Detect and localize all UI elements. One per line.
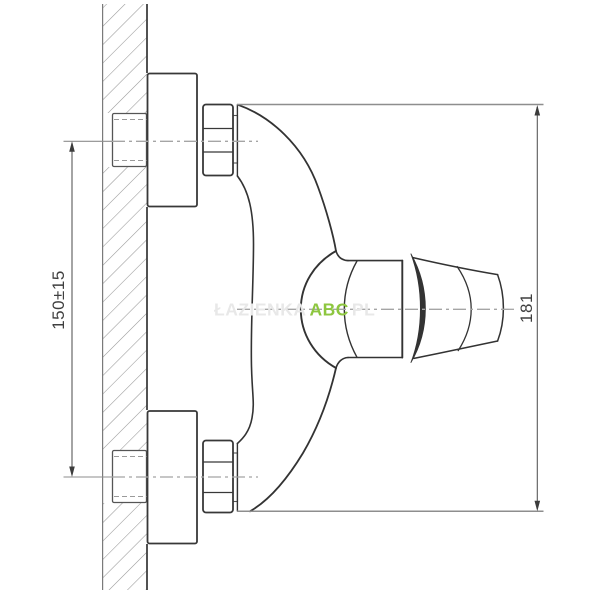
dome-bottom-fillet [336, 358, 348, 369]
handle-grip-bottom-edge [414, 341, 498, 358]
arrowhead-181-up [535, 105, 541, 116]
handle-grip-end-cap [498, 275, 504, 341]
handle-ring-crescent [411, 254, 426, 363]
dome-top-fillet [336, 251, 348, 261]
watermark: ŁAZIENKA ABC PL [214, 300, 375, 321]
wall-hatch-upper [102, 4, 147, 113]
handle-grip-contour-arc [457, 267, 471, 351]
watermark-prefix: ŁAZIENKA [214, 300, 306, 321]
wall-hatch-middle [102, 167, 147, 450]
body-neck-lower-curve [250, 368, 336, 511]
dimension-label-150: 150±15 [49, 270, 69, 330]
top-escutcheon [148, 74, 198, 207]
handle-grip-top-edge [413, 258, 498, 275]
top-hex-nut [203, 105, 233, 176]
arrowhead-150-down [69, 467, 75, 478]
wall-hatch-lower [102, 503, 147, 590]
arrowhead-150-up [69, 141, 75, 152]
dimension-label-181: 181 [517, 293, 537, 323]
top-inlet-pipe [113, 114, 147, 167]
arrowhead-181-down [535, 501, 541, 512]
watermark-brand: ABC [309, 300, 348, 321]
technical-drawing-canvas: 150±15 181 ŁAZIENKA ABC PL [0, 0, 600, 600]
watermark-suffix: PL [352, 300, 375, 321]
